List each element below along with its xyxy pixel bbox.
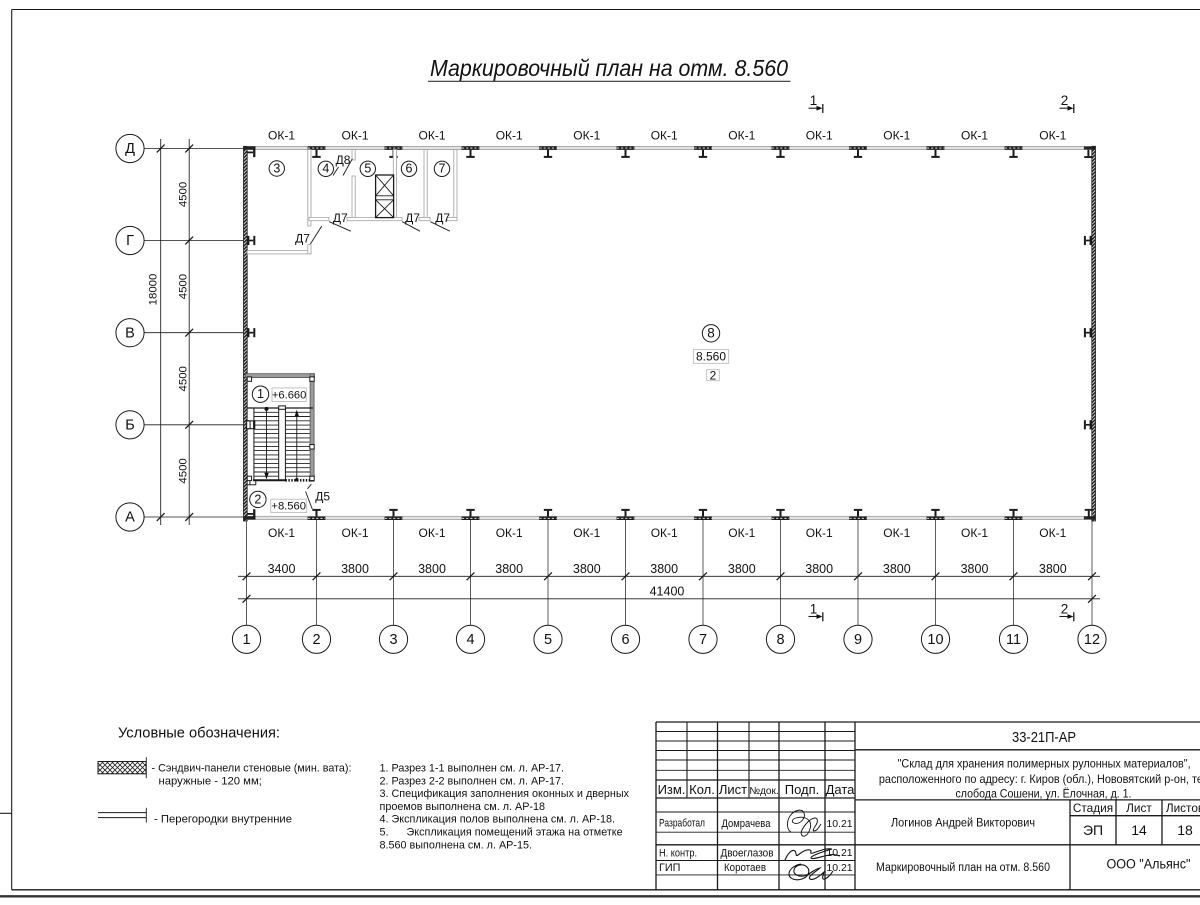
svg-text:9: 9	[854, 632, 862, 648]
svg-text:3800: 3800	[573, 562, 601, 576]
svg-text:1: 1	[242, 632, 250, 648]
svg-text:11: 11	[1006, 632, 1021, 648]
svg-text:3. Спецификация заполнения око: 3. Спецификация заполнения оконных и две…	[380, 788, 630, 800]
svg-text:ОК-1: ОК-1	[268, 526, 295, 540]
svg-text:7: 7	[699, 632, 707, 648]
svg-text:3400: 3400	[268, 562, 296, 576]
svg-text:8: 8	[776, 632, 784, 648]
svg-text:2: 2	[254, 492, 261, 506]
svg-text:расположенного по адресу: г. К: расположенного по адресу: г. Киров (обл.…	[879, 773, 1200, 786]
svg-text:3800: 3800	[1039, 562, 1067, 576]
svg-text:проемов выполнена см. л. АР-18: проемов выполнена см. л. АР-18	[380, 801, 546, 813]
svg-text:8.560: 8.560	[696, 350, 726, 364]
svg-text:3800: 3800	[341, 562, 369, 576]
svg-text:В: В	[125, 325, 135, 341]
svg-text:4: 4	[322, 162, 329, 176]
svg-text:1: 1	[810, 601, 818, 616]
svg-text:ОК-1: ОК-1	[1039, 526, 1066, 540]
svg-text:3800: 3800	[805, 562, 833, 576]
svg-text:3800: 3800	[961, 562, 989, 576]
svg-text:2: 2	[1061, 601, 1069, 616]
svg-text:8.560 выполнена см. л. АР-15.: 8.560 выполнена см. л. АР-15.	[380, 839, 533, 851]
svg-text:Н. контр.: Н. контр.	[659, 847, 697, 859]
svg-text:- Сэндвич-панели стеновые (мин: - Сэндвич-панели стеновые (мин. вата):	[152, 763, 352, 775]
svg-text:ОК-1: ОК-1	[961, 526, 988, 540]
svg-text:14: 14	[1131, 822, 1147, 838]
svg-text:2. Разрез 2-2 выполнен см. л.: 2. Разрез 2-2 выполнен см. л. АР-17.	[380, 775, 564, 787]
svg-text:А: А	[125, 510, 135, 526]
svg-text:5: 5	[364, 162, 371, 176]
svg-text:ОК-1: ОК-1	[342, 129, 369, 143]
svg-text:2: 2	[312, 632, 320, 648]
svg-text:3: 3	[273, 161, 280, 175]
svg-text:Изм.: Изм.	[658, 782, 686, 797]
svg-text:+8.560: +8.560	[271, 501, 306, 513]
svg-text:Подп.: Подп.	[785, 782, 820, 797]
svg-text:ОК-1: ОК-1	[419, 129, 446, 143]
svg-text:Д7: Д7	[405, 211, 420, 225]
svg-text:ОК-1: ОК-1	[728, 526, 755, 540]
svg-text:3800: 3800	[728, 562, 756, 576]
svg-text:3800: 3800	[650, 562, 678, 576]
svg-text:Лист: Лист	[719, 782, 747, 797]
svg-text:ОК-1: ОК-1	[573, 526, 600, 540]
svg-text:5. Экспликация помещений: 5. Экспликация помещений этажа на отметк…	[380, 827, 623, 839]
svg-text:2: 2	[710, 368, 717, 382]
svg-text:ОК-1: ОК-1	[268, 129, 295, 143]
svg-text:ОК-1: ОК-1	[728, 129, 755, 143]
svg-text:Логинов Андрей Викторович: Логинов Андрей Викторович	[891, 817, 1035, 829]
svg-text:ОК-1: ОК-1	[651, 526, 678, 540]
svg-text:Д8: Д8	[336, 153, 351, 167]
svg-text:3800: 3800	[418, 562, 446, 576]
svg-text:4. Экспликация полов выполнена: 4. Экспликация полов выполнена см. л. АР…	[380, 814, 615, 826]
svg-text:10.21: 10.21	[826, 818, 852, 830]
svg-text:Маркировочный план на отм. 8.5: Маркировочный план на отм. 8.560	[876, 862, 1050, 874]
svg-text:ОК-1: ОК-1	[1039, 129, 1066, 143]
svg-text:Дата: Дата	[826, 782, 856, 797]
svg-text:"Склад для хранения полимерных: "Склад для хранения полимерных рулонных …	[898, 758, 1191, 771]
svg-text:ОК-1: ОК-1	[651, 129, 678, 143]
svg-text:ОК-1: ОК-1	[883, 129, 910, 143]
svg-text:1: 1	[257, 387, 264, 401]
svg-text:Разработал: Разработал	[659, 818, 705, 830]
svg-text:ОК-1: ОК-1	[496, 129, 523, 143]
svg-text:наружные - 120 мм;: наружные - 120 мм;	[159, 775, 262, 787]
svg-text:4500: 4500	[178, 458, 190, 483]
svg-text:Кол.: Кол.	[689, 782, 715, 797]
svg-text:8: 8	[707, 326, 715, 341]
svg-text:ОК-1: ОК-1	[806, 526, 833, 540]
svg-text:Д7: Д7	[435, 211, 450, 225]
svg-text:+6.660: +6.660	[272, 390, 307, 402]
svg-text:Домрачева: Домрачева	[722, 818, 772, 830]
svg-text:Стадия: Стадия	[1073, 801, 1113, 815]
svg-text:Коротаев: Коротаев	[724, 862, 766, 874]
svg-text:- Перегородки внутренние: - Перегородки внутренние	[154, 813, 292, 825]
svg-text:6: 6	[406, 162, 413, 176]
svg-text:Д5: Д5	[315, 490, 330, 504]
svg-text:ОК-1: ОК-1	[342, 526, 369, 540]
svg-text:18000: 18000	[148, 274, 160, 306]
svg-text:33-21П-АР: 33-21П-АР	[1012, 730, 1076, 746]
svg-text:7: 7	[439, 162, 446, 176]
svg-text:слобода Сошени, ул. Ёлочная, д: слобода Сошени, ул. Ёлочная, д. 1.	[956, 787, 1132, 800]
svg-text:1: 1	[810, 93, 818, 108]
svg-text:10.21: 10.21	[826, 862, 852, 874]
svg-text:4: 4	[466, 632, 474, 648]
svg-text:ОК-1: ОК-1	[419, 526, 446, 540]
svg-text:10: 10	[927, 632, 943, 648]
svg-text:Г: Г	[126, 233, 134, 249]
svg-text:Д7: Д7	[333, 211, 348, 225]
svg-text:ЭП: ЭП	[1083, 822, 1103, 838]
svg-text:4500: 4500	[178, 182, 190, 207]
svg-text:Листов: Листов	[1166, 801, 1200, 815]
svg-text:ООО "Альянс": ООО "Альянс"	[1107, 857, 1191, 872]
svg-text:№док.: №док.	[749, 786, 778, 797]
svg-text:Б: Б	[125, 417, 135, 433]
svg-text:4500: 4500	[177, 366, 189, 391]
svg-text:Д7: Д7	[295, 231, 310, 245]
svg-text:Лист: Лист	[1126, 801, 1152, 815]
svg-text:2: 2	[1061, 93, 1069, 108]
svg-text:ОК-1: ОК-1	[573, 129, 600, 143]
svg-text:3: 3	[389, 632, 397, 648]
svg-text:ГИП: ГИП	[659, 862, 680, 874]
svg-text:ОК-1: ОК-1	[496, 526, 523, 540]
svg-text:ОК-1: ОК-1	[806, 129, 833, 143]
svg-text:5: 5	[544, 632, 552, 648]
svg-text:12: 12	[1084, 632, 1100, 648]
svg-text:Двоеглазов: Двоеглазов	[721, 847, 774, 859]
svg-text:6: 6	[621, 632, 629, 648]
svg-text:3800: 3800	[495, 562, 523, 576]
svg-text:41400: 41400	[650, 585, 685, 599]
svg-text:4500: 4500	[178, 274, 190, 299]
svg-text:ОК-1: ОК-1	[883, 526, 910, 540]
svg-text:1. Разрез 1-1 выполнен см. л.: 1. Разрез 1-1 выполнен см. л. АР-17.	[380, 763, 564, 775]
svg-text:3800: 3800	[883, 562, 911, 576]
svg-text:Маркировочный план на отм. 8.5: Маркировочный план на отм. 8.560	[430, 55, 788, 81]
svg-text:ОК-1: ОК-1	[961, 129, 988, 143]
svg-text:Условные обозначения:: Условные обозначения:	[118, 725, 280, 742]
svg-text:18: 18	[1177, 822, 1193, 838]
svg-text:Д: Д	[125, 141, 135, 157]
